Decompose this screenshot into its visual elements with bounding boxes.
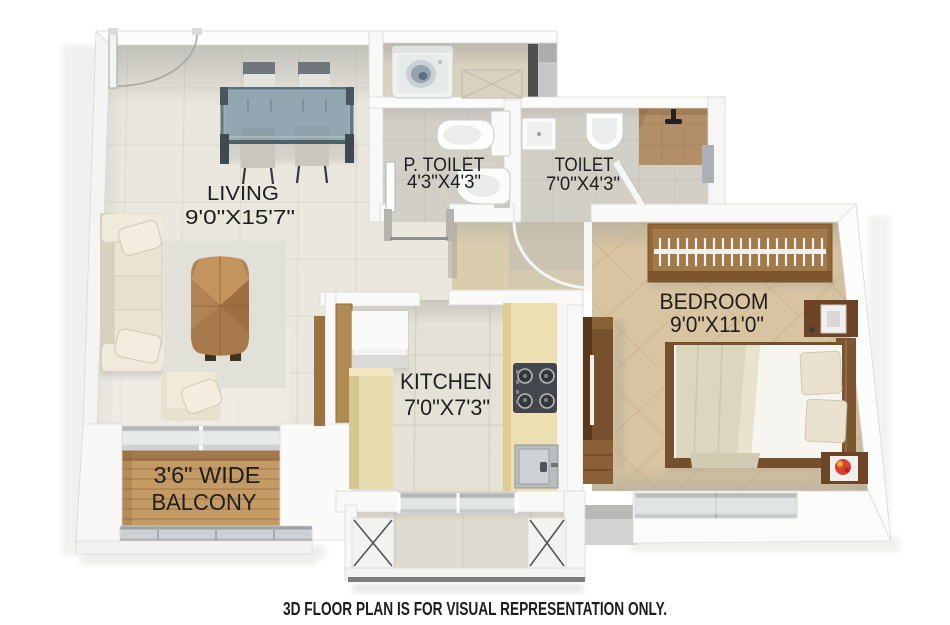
- svg-text:9'0"X11'0": 9'0"X11'0": [670, 312, 764, 337]
- svg-text:KITCHEN: KITCHEN: [400, 369, 492, 394]
- svg-text:7'0"X4'3": 7'0"X4'3": [546, 174, 620, 195]
- svg-text:3D FLOOR PLAN IS FOR VISUAL RE: 3D FLOOR PLAN IS FOR VISUAL REPRESENTATI…: [283, 598, 667, 619]
- svg-text:7'0"X7'3": 7'0"X7'3": [404, 395, 490, 420]
- svg-text:4'3"X4'3": 4'3"X4'3": [407, 172, 481, 193]
- svg-text:TOILET: TOILET: [555, 155, 614, 176]
- svg-text:LIVING: LIVING: [207, 183, 279, 205]
- svg-text:BALCONY: BALCONY: [152, 489, 257, 515]
- svg-text:9'0"X15'7": 9'0"X15'7": [185, 207, 295, 229]
- svg-text:3'6" WIDE: 3'6" WIDE: [154, 462, 261, 488]
- svg-text:BEDROOM: BEDROOM: [660, 289, 769, 314]
